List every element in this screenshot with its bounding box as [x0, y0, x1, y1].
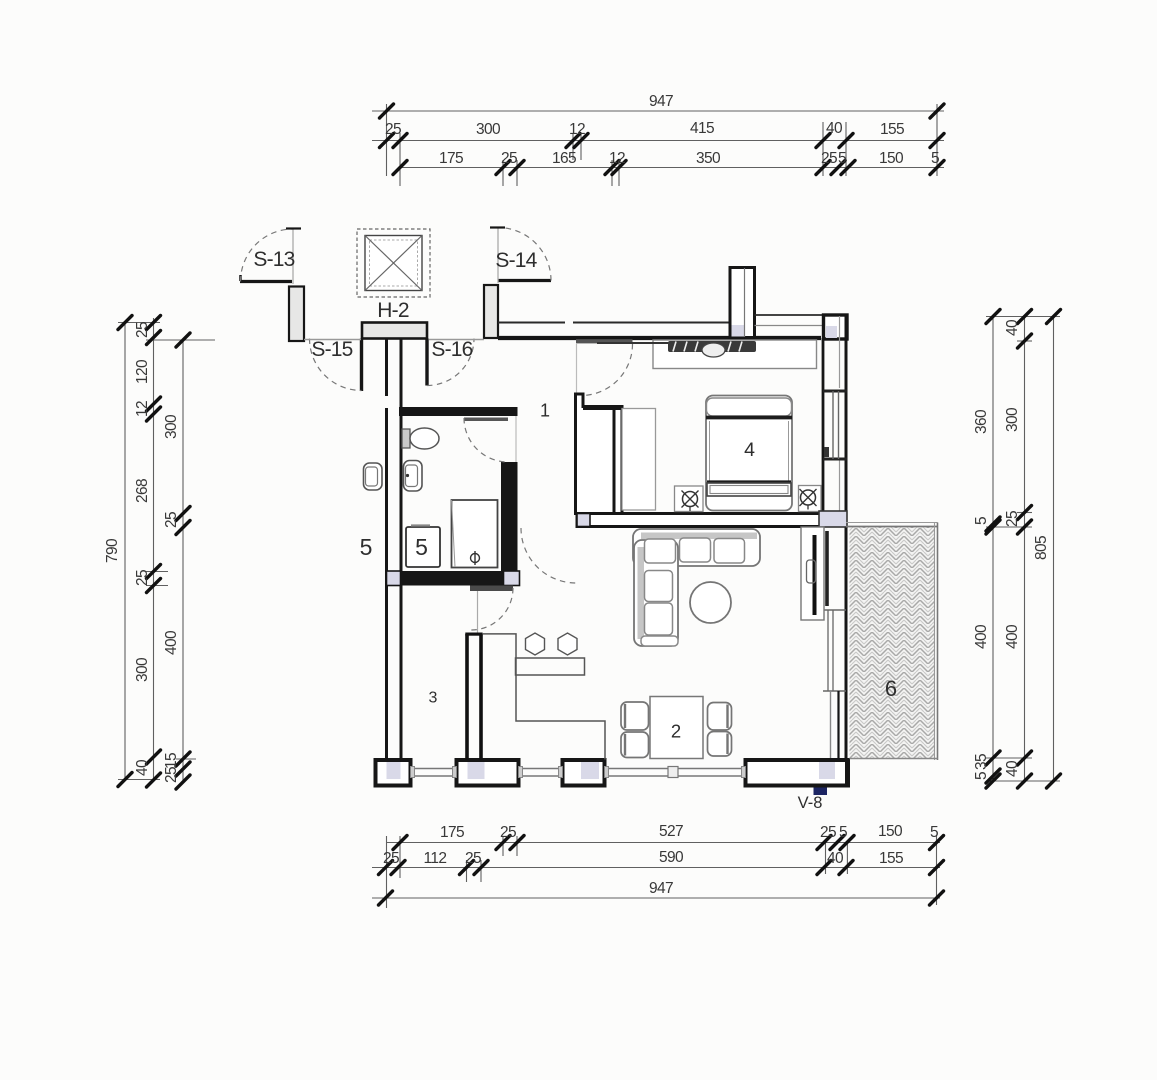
svg-text:2: 2	[671, 721, 681, 742]
svg-text:V-8: V-8	[798, 794, 823, 812]
svg-text:5: 5	[360, 534, 373, 560]
svg-text:S-13: S-13	[253, 248, 294, 271]
svg-text:790: 790	[104, 538, 121, 563]
svg-text:400: 400	[1004, 624, 1021, 649]
svg-text:175: 175	[439, 150, 463, 167]
svg-text:25: 25	[385, 121, 401, 138]
svg-text:415: 415	[690, 120, 714, 137]
svg-text:12: 12	[569, 121, 585, 138]
svg-text:40: 40	[134, 759, 151, 776]
svg-text:40: 40	[827, 850, 844, 867]
svg-text:3: 3	[429, 690, 438, 707]
svg-text:12: 12	[134, 401, 151, 417]
svg-text:150: 150	[878, 823, 903, 840]
svg-text:S-15: S-15	[311, 338, 352, 361]
svg-text:360: 360	[973, 409, 990, 434]
svg-text:6: 6	[885, 676, 897, 701]
svg-text:40: 40	[826, 120, 843, 137]
svg-text:35: 35	[973, 754, 990, 770]
svg-text:112: 112	[424, 850, 447, 867]
svg-text:25: 25	[163, 767, 180, 783]
svg-text:25: 25	[821, 150, 837, 167]
svg-text:12: 12	[609, 150, 625, 167]
svg-text:25: 25	[500, 824, 516, 841]
svg-text:25: 25	[465, 850, 481, 867]
svg-text:25: 25	[134, 322, 151, 338]
svg-text:300: 300	[163, 414, 180, 439]
svg-text:5: 5	[838, 150, 846, 167]
svg-text:S-14: S-14	[495, 249, 537, 272]
svg-text:400: 400	[973, 624, 990, 649]
svg-text:25: 25	[1004, 511, 1021, 527]
svg-text:590: 590	[659, 849, 684, 866]
svg-text:5: 5	[415, 534, 428, 560]
svg-text:5: 5	[973, 772, 990, 780]
svg-text:155: 155	[880, 121, 904, 138]
svg-text:805: 805	[1033, 536, 1050, 560]
svg-text:300: 300	[476, 121, 501, 138]
svg-text:H-2: H-2	[377, 299, 409, 322]
svg-text:400: 400	[163, 630, 180, 655]
svg-text:S-16: S-16	[431, 338, 472, 361]
svg-text:25: 25	[820, 824, 836, 841]
svg-text:25: 25	[134, 570, 151, 586]
svg-text:1: 1	[540, 401, 550, 421]
svg-text:165: 165	[552, 150, 576, 167]
svg-text:350: 350	[696, 150, 721, 167]
svg-text:150: 150	[879, 150, 904, 167]
svg-text:300: 300	[134, 657, 151, 682]
svg-text:15: 15	[163, 753, 180, 769]
svg-text:40: 40	[1004, 760, 1021, 777]
svg-text:5: 5	[839, 824, 847, 841]
svg-text:268: 268	[134, 479, 151, 503]
svg-text:5: 5	[931, 150, 939, 167]
svg-text:5: 5	[973, 517, 990, 525]
svg-text:175: 175	[440, 824, 464, 841]
svg-text:947: 947	[649, 93, 673, 110]
svg-text:5: 5	[930, 824, 938, 841]
svg-text:25: 25	[383, 850, 399, 867]
svg-text:120: 120	[134, 359, 151, 384]
svg-text:4: 4	[744, 439, 755, 461]
svg-text:25: 25	[501, 150, 517, 167]
svg-text:40: 40	[1004, 319, 1021, 336]
svg-text:947: 947	[649, 880, 673, 897]
svg-text:300: 300	[1004, 407, 1021, 432]
svg-text:25: 25	[163, 512, 180, 528]
svg-text:527: 527	[659, 823, 683, 840]
svg-text:155: 155	[879, 850, 903, 867]
